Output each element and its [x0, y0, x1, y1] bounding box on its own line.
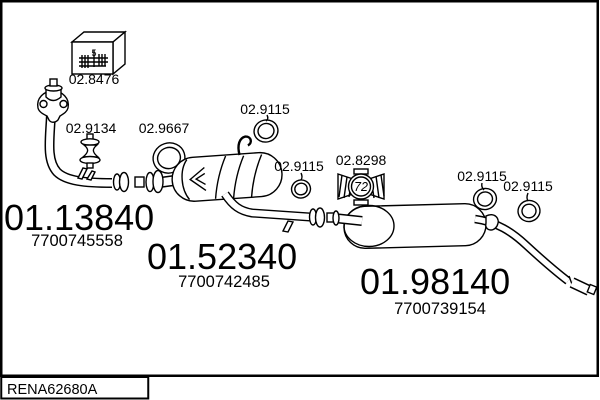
- centre-silencer-oem-ref: 7700742485: [178, 273, 270, 291]
- sealing-ring-4-label: 02.9115: [503, 178, 553, 194]
- catalog-code: RENA62680A: [7, 382, 98, 398]
- sealing-ring-2-label: 02.9115: [274, 158, 324, 174]
- clamp-diameter-marking: 72: [354, 180, 368, 194]
- fitting-kit-label: 02.8476: [69, 71, 120, 87]
- rear-silencer-code: 01.98140: [360, 261, 510, 302]
- rubber-mount-label: 02.9134: [66, 120, 117, 136]
- front-pipe-oem-ref: 7700745558: [31, 232, 123, 250]
- tailpipe-hanger: [486, 215, 498, 230]
- exhaust-parts-diagram: 5 02.8476 02.9134 02.9667: [0, 0, 600, 400]
- clamp-label: 02.8298: [336, 152, 387, 168]
- gasket-ring-label: 02.9667: [139, 120, 190, 136]
- diagram-canvas: 5 02.8476 02.9134 02.9667: [0, 0, 600, 400]
- fitting-kit-box: 5: [72, 32, 125, 74]
- joint-gasket: [135, 177, 144, 187]
- rear-silencer-body: [343, 203, 486, 249]
- sealing-ring-3-label: 02.9115: [457, 168, 507, 184]
- centre-silencer-code: 01.52340: [147, 236, 297, 277]
- sealing-ring-1-label: 02.9115: [240, 101, 290, 117]
- fitting-kit-marking: 5: [91, 48, 96, 58]
- rear-silencer-oem-ref: 7700739154: [394, 300, 486, 318]
